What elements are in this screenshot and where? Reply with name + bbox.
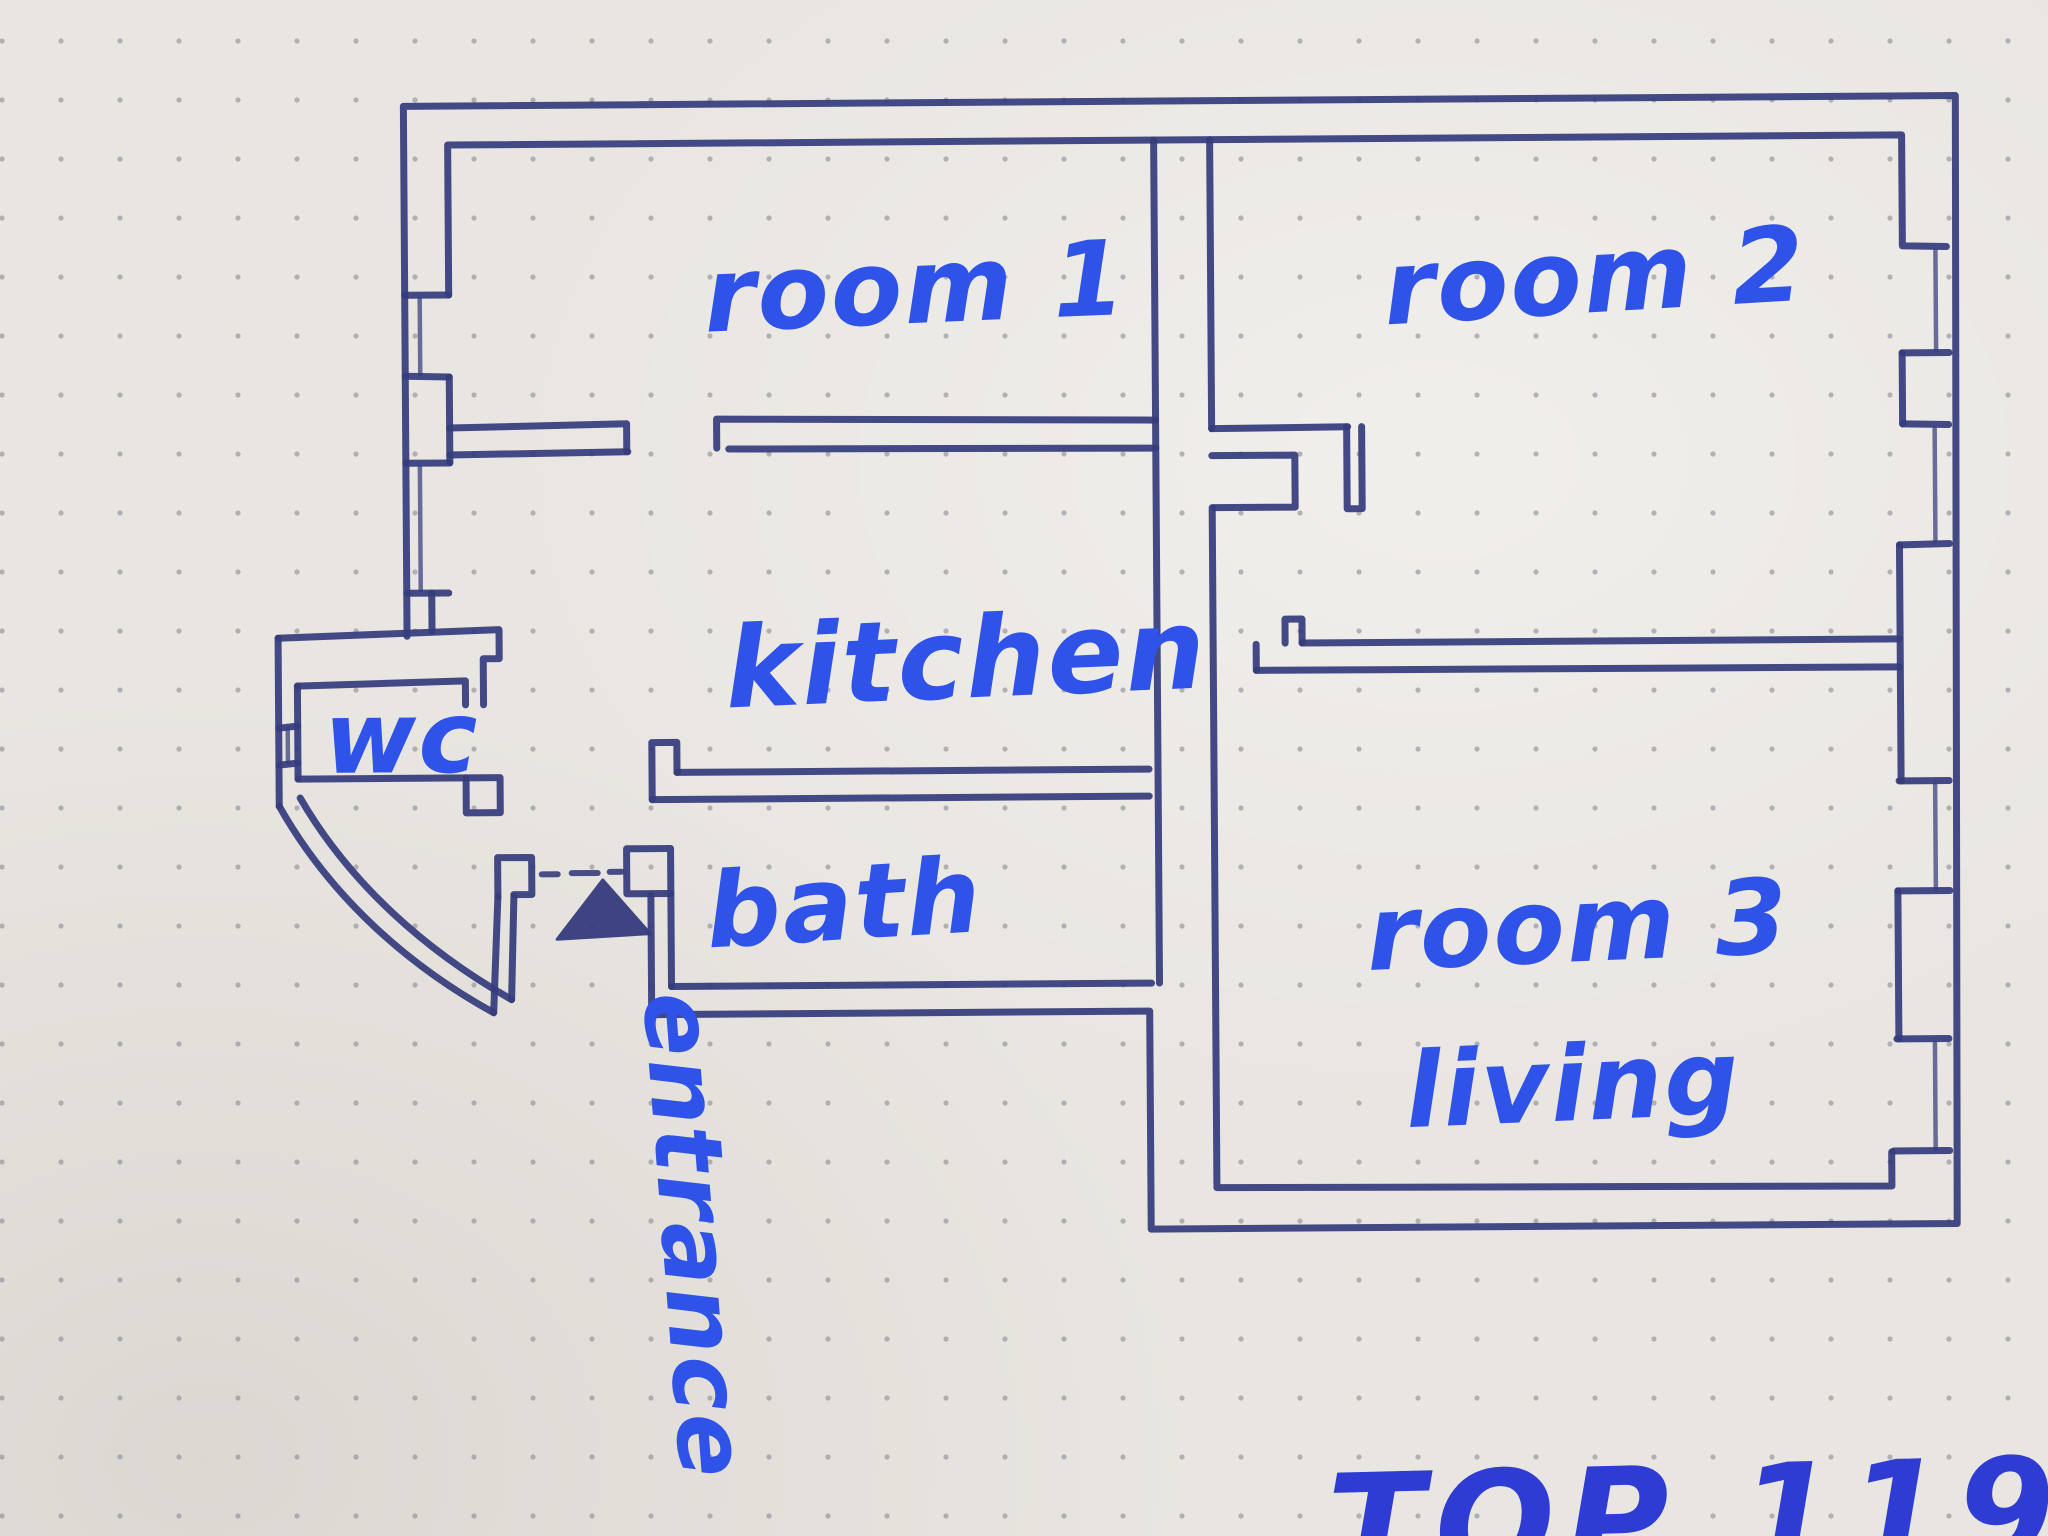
floorplan-svg: room 1 room 2 kitchen wc bath room 3 liv…: [0, 0, 2048, 1536]
entrance-door-dashes: [542, 872, 622, 875]
divider23-lower: [1256, 666, 1899, 671]
divider-right-face: [1210, 140, 1212, 429]
window-glazing: [1935, 785, 1936, 889]
window-glazing: [420, 467, 421, 590]
splay-jamb-face: [511, 897, 515, 1000]
label-wc: wc: [324, 679, 480, 797]
splay-jamb-face: [493, 897, 499, 1013]
label-room1: room 1: [701, 217, 1129, 357]
window-glazing: [420, 299, 421, 374]
wall-pier-face: [1898, 891, 1899, 1039]
window-glazing: [1935, 1043, 1936, 1149]
label-kitchen: kitchen: [722, 584, 1209, 734]
window-sill: [405, 376, 449, 377]
window-glazing: [1935, 429, 1936, 541]
room2-niche-cap: [1212, 427, 1348, 429]
wc-left-outer: [278, 638, 279, 806]
plan-annotation: TOP 119: [1326, 1427, 2048, 1536]
wall-pier-face: [449, 377, 450, 462]
kitchen-bottom-lower: [652, 796, 1149, 799]
kitchen-top-lower-left: [450, 452, 628, 455]
bath-left-inner: [671, 893, 672, 986]
wall-pier-face: [1899, 545, 1901, 781]
bath-bottom-inner: [672, 983, 1152, 986]
window-sill: [1903, 424, 1949, 425]
label-room3-living: living: [1403, 1016, 1743, 1152]
window-sill: [1899, 544, 1949, 545]
label-room2: room 2: [1380, 203, 1810, 350]
window-glazing: [1935, 251, 1936, 351]
label-room3: room 3: [1364, 855, 1792, 995]
kitchen-bottom-upper: [677, 769, 1149, 772]
label-bath: bath: [702, 834, 985, 972]
kitchen-top-lower-right: [729, 446, 1156, 451]
divider23-upper: [1302, 639, 1899, 643]
